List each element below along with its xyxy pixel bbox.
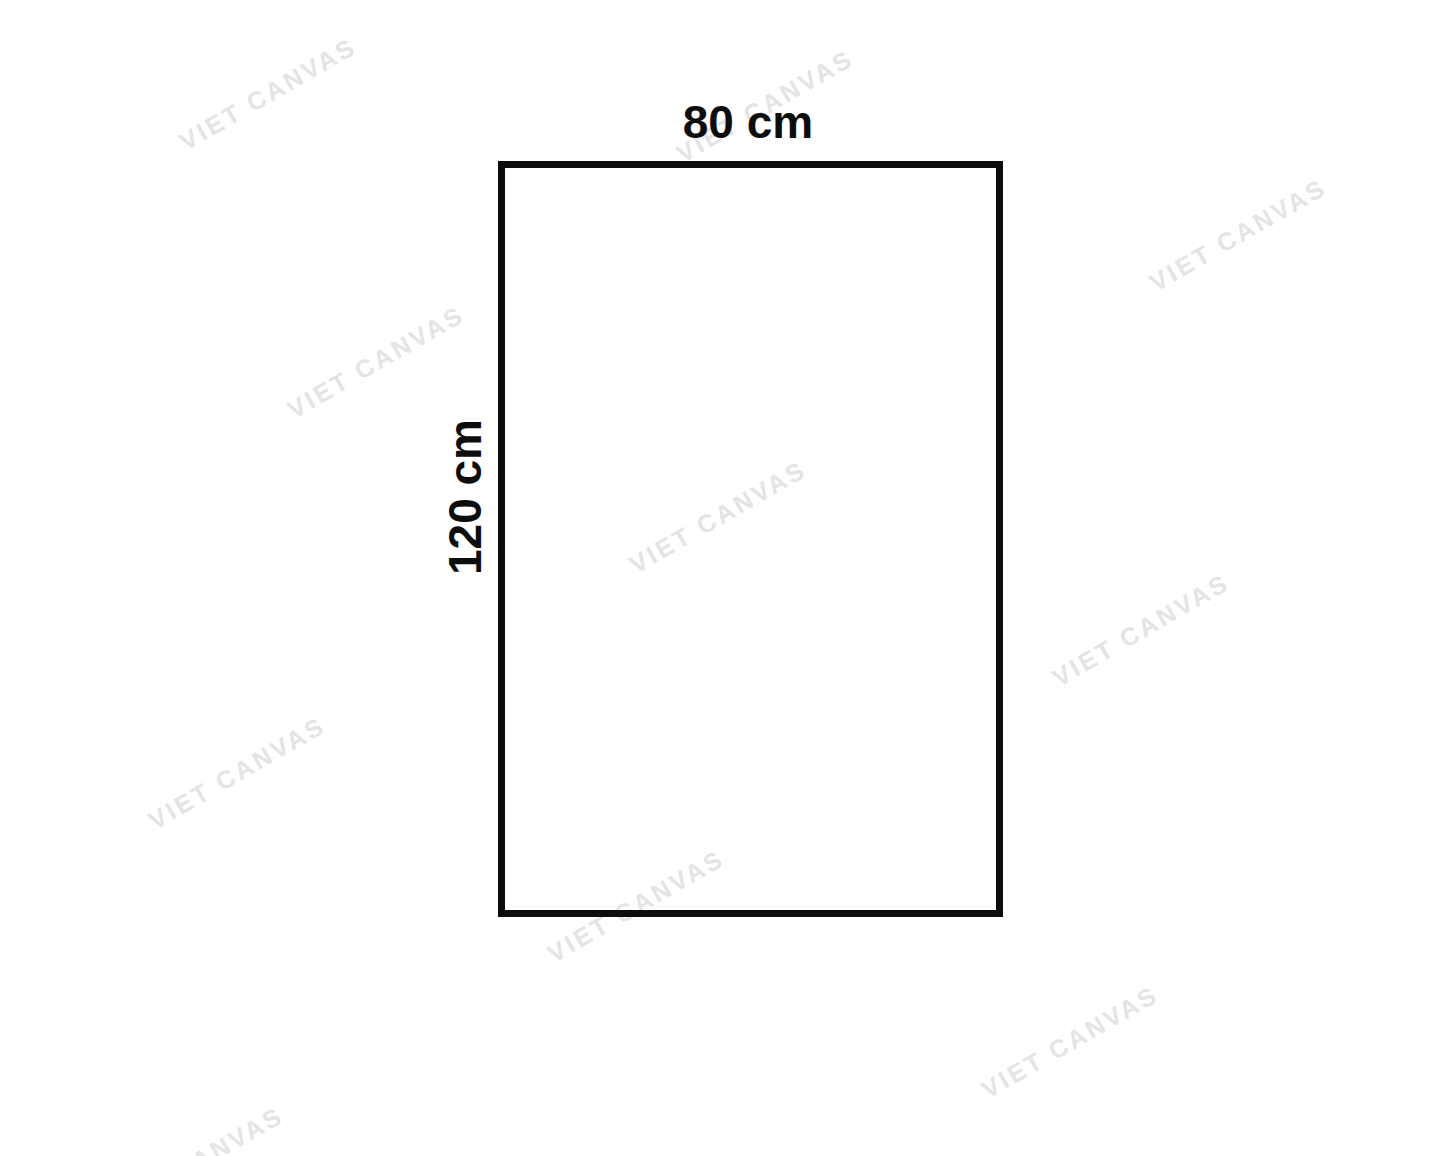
canvas-outline-rectangle <box>498 161 1003 917</box>
height-dimension-label: 120 cm <box>442 419 488 575</box>
watermark-text: VIET CANVAS <box>174 32 361 157</box>
watermark-text: VIET CANVAS <box>101 1101 288 1156</box>
product-dimension-diagram: VIET CANVASVIET CANVASVIET CANVASVIET CA… <box>0 0 1445 1156</box>
watermark-text: VIET CANVAS <box>1047 568 1234 693</box>
width-dimension-label: 80 cm <box>683 99 813 145</box>
watermark-text: VIET CANVAS <box>976 980 1163 1105</box>
watermark-text: VIET CANVAS <box>143 711 330 836</box>
watermark-text: VIET CANVAS <box>282 300 469 425</box>
watermark-text: VIET CANVAS <box>1144 173 1331 298</box>
